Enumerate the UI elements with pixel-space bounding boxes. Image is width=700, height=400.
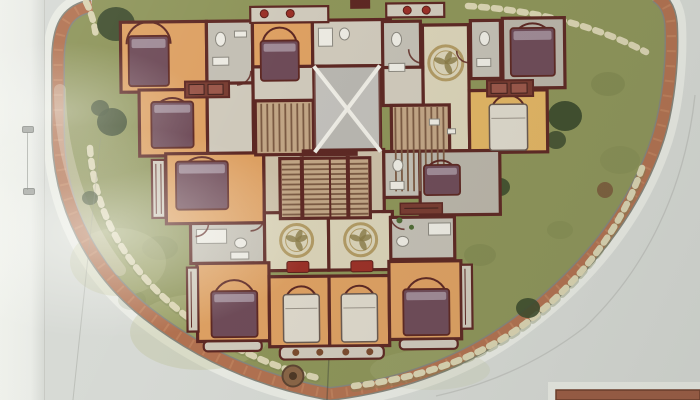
room-landing-right: [383, 67, 423, 105]
paper-left-margin: [0, 0, 45, 400]
wardrobe: [185, 81, 229, 97]
brown-shrub: [597, 182, 613, 198]
tree: [91, 100, 109, 116]
tree: [548, 101, 582, 131]
medallion: [344, 224, 376, 256]
flower-pot: [260, 10, 268, 18]
bed: [283, 294, 320, 342]
medallion: [429, 46, 463, 80]
medallion: [280, 224, 312, 256]
staple-icon: [23, 188, 35, 195]
bench: [400, 203, 442, 214]
staple-icon: [22, 126, 34, 133]
bed: [341, 294, 378, 342]
flower-pot: [286, 9, 294, 17]
room-bath-b: [206, 21, 253, 83]
sofa: [287, 261, 309, 272]
balcony-bottom-right: [400, 339, 458, 350]
sofa: [351, 261, 373, 272]
bed: [489, 104, 527, 150]
balcony-side-right: [461, 265, 473, 329]
staple-leg: [27, 132, 28, 190]
stair-landing: [302, 149, 358, 157]
chimney-block: [350, 0, 370, 9]
flower-pot: [403, 6, 411, 14]
stairs-left: [255, 100, 314, 155]
fountain: [283, 366, 304, 387]
tree: [516, 298, 540, 318]
balcony-top-right: [386, 3, 444, 18]
balcony-left-wing: [152, 160, 166, 218]
balcony-bottom-left: [204, 341, 262, 352]
tree: [82, 191, 98, 205]
room-bath-f: [470, 20, 501, 78]
brick-panel-strip: [556, 390, 700, 400]
plan-photo: [0, 0, 700, 400]
main-staircase: [280, 149, 371, 219]
balcony-side-left: [187, 267, 199, 331]
site-plan-drawing: [0, 0, 700, 400]
wardrobe: [487, 80, 533, 96]
second-sheet-edge: [548, 382, 700, 400]
flower-pot: [422, 6, 430, 14]
